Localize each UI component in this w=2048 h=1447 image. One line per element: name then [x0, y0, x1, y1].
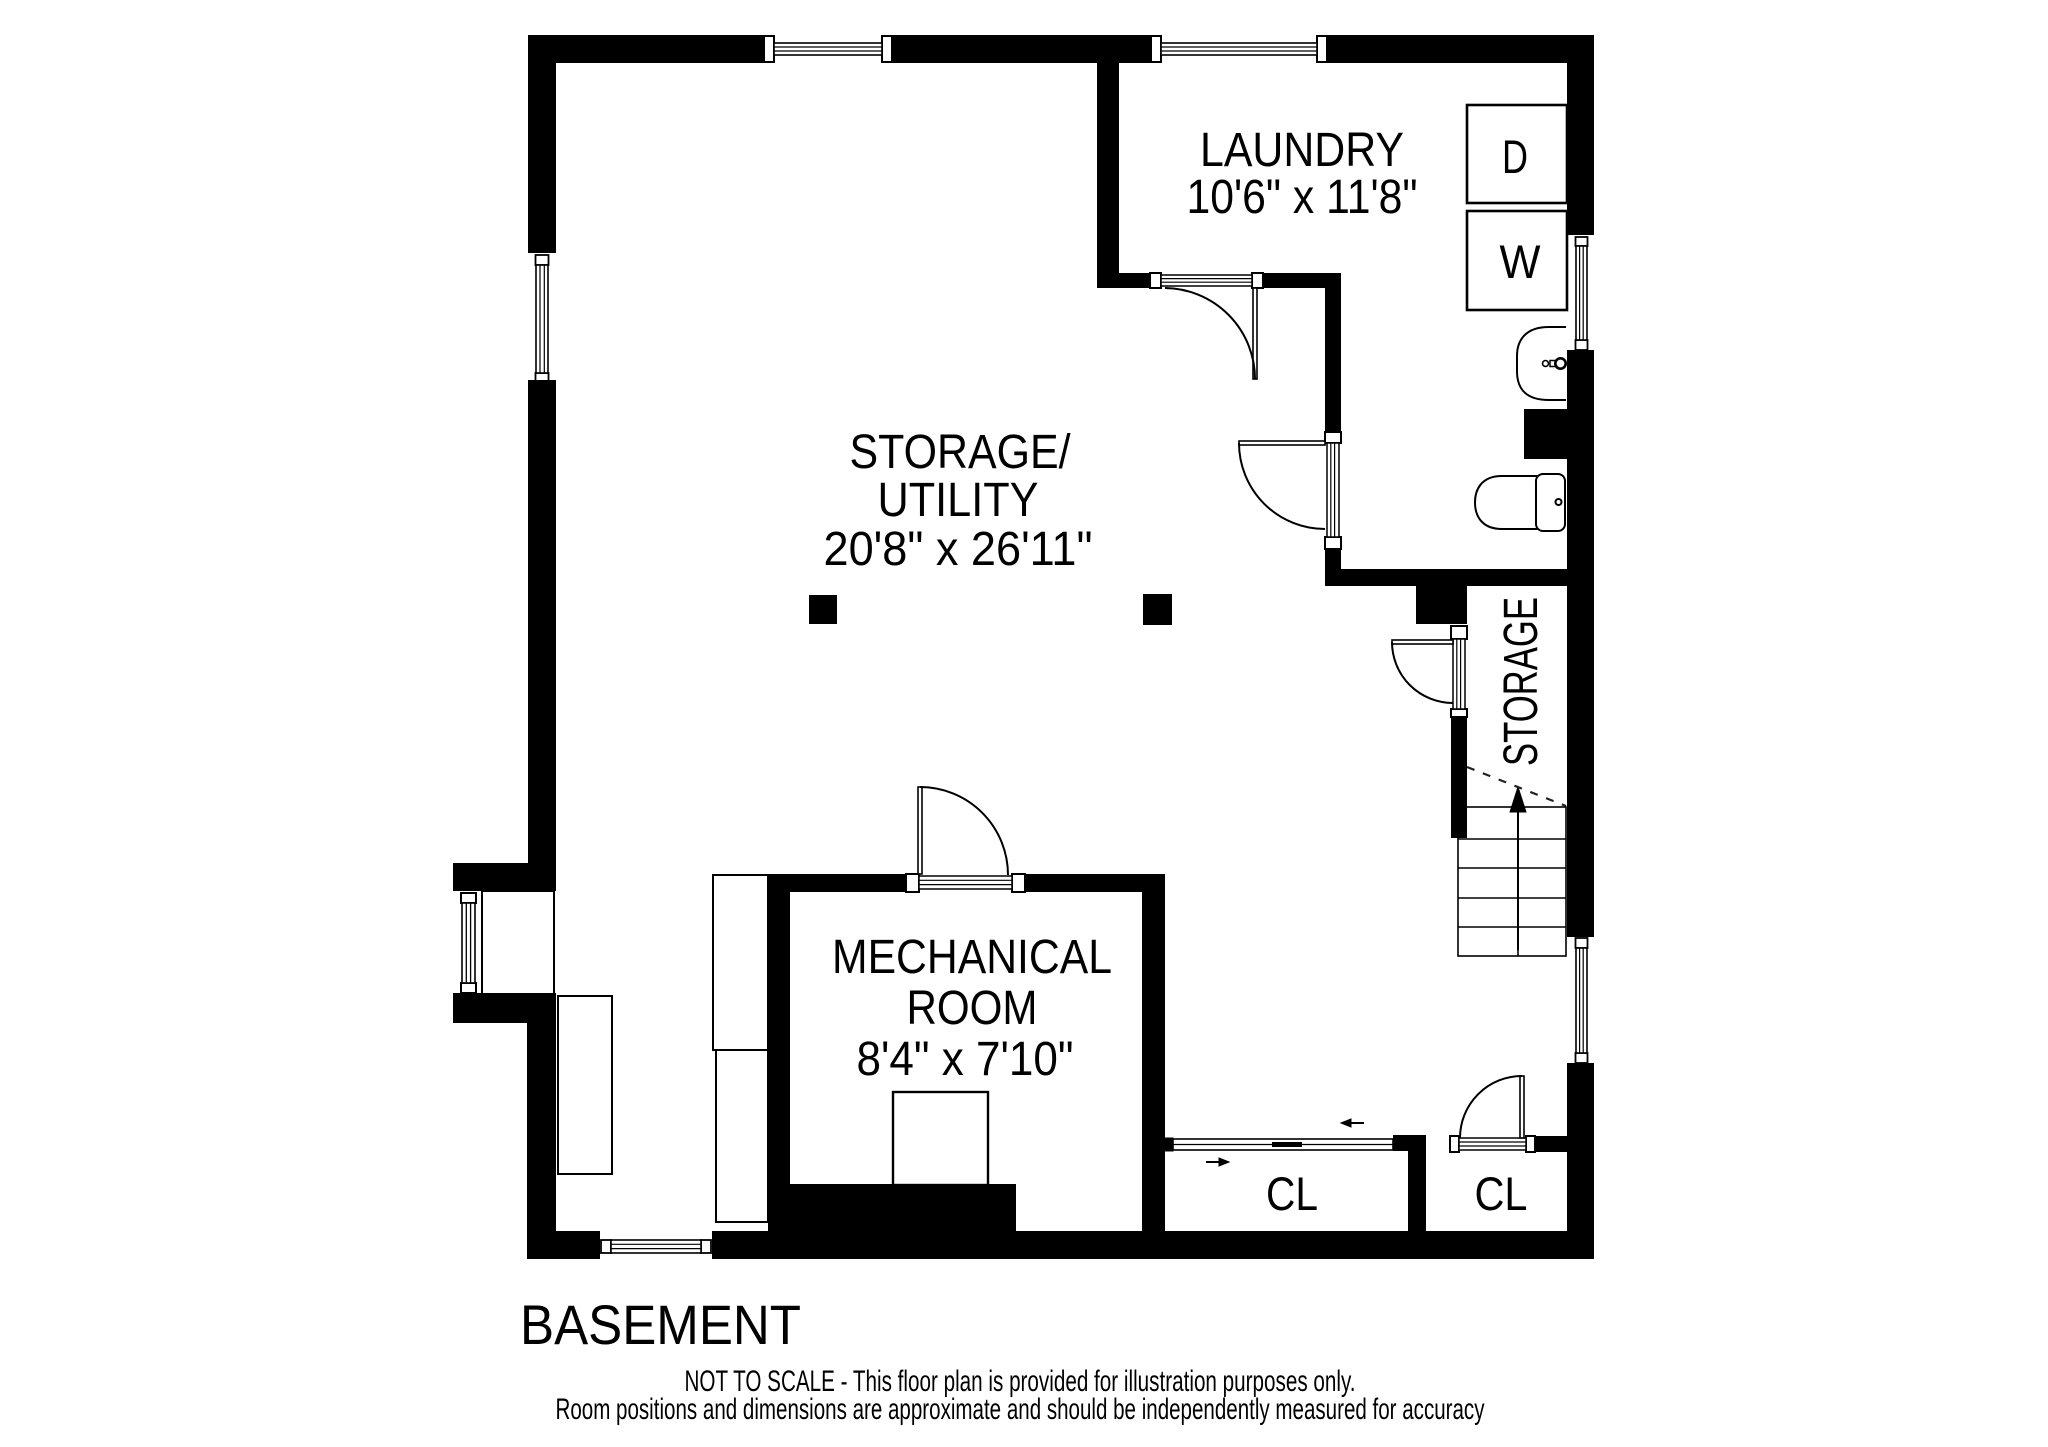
svg-text:20'8" x 26'11": 20'8" x 26'11" — [824, 523, 1093, 576]
svg-text:STORAGE/: STORAGE/ — [850, 426, 1072, 479]
svg-text:W: W — [1500, 235, 1542, 288]
svg-text:ROOM: ROOM — [907, 982, 1038, 1035]
svg-text:Room positions and dimensions: Room positions and dimensions are approx… — [556, 1393, 1485, 1426]
svg-text:CL: CL — [1266, 1167, 1318, 1220]
svg-text:BASEMENT: BASEMENT — [520, 1293, 801, 1356]
svg-text:D: D — [1502, 130, 1528, 183]
svg-text:UTILITY: UTILITY — [878, 474, 1039, 527]
svg-text:CL: CL — [1475, 1167, 1528, 1220]
svg-text:STORAGE: STORAGE — [1495, 597, 1548, 766]
svg-text:10'6" x 11'8": 10'6" x 11'8" — [1187, 171, 1418, 224]
svg-text:LAUNDRY: LAUNDRY — [1200, 124, 1404, 177]
svg-text:MECHANICAL: MECHANICAL — [832, 931, 1112, 984]
svg-text:8'4" x 7'10": 8'4" x 7'10" — [857, 1033, 1074, 1086]
